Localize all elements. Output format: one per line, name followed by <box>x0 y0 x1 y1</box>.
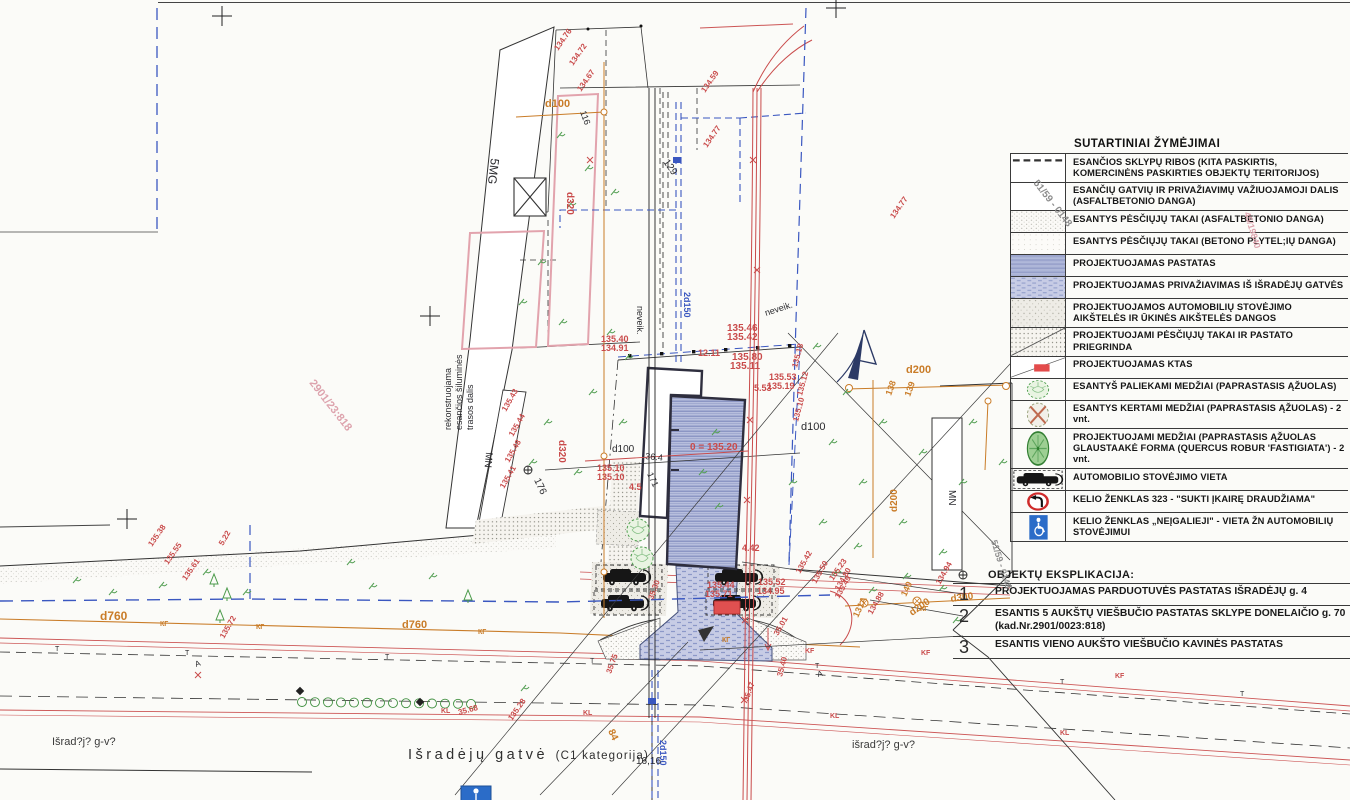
legend-item: KELIO ŽENKLAS 323 - "SUKTI ĮKAIRĘ DRAUDŽ… <box>1011 491 1348 513</box>
tree-projected-icon <box>1011 429 1066 468</box>
plan-label: KL <box>1060 730 1070 737</box>
legend-item: PROJEKTUOJAMI MEDŽIAI (PAPRASTASIS ĄŽUOL… <box>1011 429 1348 469</box>
path-concrete-icon <box>1011 233 1066 254</box>
legend-item-label: PROJEKTUOJAMAS KTAS <box>1066 357 1348 378</box>
street-note-right: išrad?j? g-v? <box>852 739 915 751</box>
legend-item-label: PROJEKTUOJAMOS AUTOMOBILIŲ STOVĖJIMO AIK… <box>1066 299 1348 327</box>
legend-item: ESANTYŠ PALIEKAMI MEDŽIAI (PAPRASTASIS Ą… <box>1011 379 1348 401</box>
plan-label: d200 <box>889 489 900 512</box>
plan-label: T <box>185 650 190 657</box>
plan-label: КГ <box>722 637 730 644</box>
footpath-projected-icon <box>1011 328 1066 356</box>
plan-label: esančios šiluminės <box>454 354 464 430</box>
path-asphalt-icon <box>1011 211 1066 232</box>
plan-label: d320 <box>564 192 575 215</box>
plan-label: 134.95 <box>757 586 785 596</box>
plan-label: d760 <box>100 609 128 623</box>
street-name: Išradėjų gatvė <box>408 747 548 763</box>
explication-item: 1PROJEKTUOJAMAS PARDUOTUVĖS PASTATAS IŠR… <box>953 583 1350 605</box>
parking-surface-icon <box>1011 299 1066 327</box>
explication-text: ESANTIS VIENO AUKŠTO VIEŠBUČIO KAVINĖS P… <box>995 638 1350 656</box>
tree-removed-icon <box>1011 401 1066 429</box>
ktas-marker-plan <box>714 601 740 614</box>
legend-item: PROJEKTUOJAMAS KTAS <box>1011 357 1348 379</box>
road-asphalt-icon <box>1011 183 1066 211</box>
legend-item-label: AUTOMOBILIO STOVĖJIMO VIETA <box>1066 469 1348 490</box>
plan-label: T <box>1240 691 1245 698</box>
plan-label: КГ <box>160 621 168 628</box>
building-projected-icon <box>1011 255 1066 276</box>
explication-panel: OBJEKTŲ EKSPLIKACIJA: 1PROJEKTUOJAMAS PA… <box>953 569 1350 659</box>
boundary-icon <box>1011 154 1066 182</box>
legend-item-label: PROJEKTUOJAMI MEDŽIAI (PAPRASTASIS ĄŽUOL… <box>1066 429 1348 468</box>
legend-item-label: ESANČIŲ GATVIŲ IR PRIVAŽIAVIMŲ VAŽIUOJAM… <box>1066 183 1348 211</box>
plan-label: KF <box>805 648 815 655</box>
plan-label: 36.4 <box>645 451 663 463</box>
plan-label: КГ <box>920 606 928 613</box>
legend-item-label: ESANTYS KERTAMI MEDŽIAI (PAPRASTASIS ĄŽU… <box>1066 401 1348 429</box>
plan-label: 12.11 <box>698 348 720 358</box>
plan-label: neveik. <box>635 306 645 335</box>
legend-item-label: ESANTYS PĖSČIŲJŲ TAKAI (ASFALTBETONIO DA… <box>1066 211 1348 232</box>
plan-label: d760 <box>402 619 427 631</box>
explication-item: 2ESANTIS 5 AUKŠTŲ VIEŠBUČIO PASTATAS SKL… <box>953 605 1350 636</box>
sign-no-left-turn-icon <box>1011 491 1066 512</box>
plan-label: MN <box>946 490 957 506</box>
legend-item: ESANČIŲ GATVIŲ IR PRIVAŽIAVIMŲ VAŽIUOJAM… <box>1011 183 1348 212</box>
sign-disabled-parking-icon <box>1011 513 1066 541</box>
parking-spot-car-icon <box>1011 469 1066 490</box>
legend-panel: SUTARTINIAI ŽYMĖJIMAI ESANČIOS SKLYPŲ RI… <box>1010 138 1348 542</box>
explication-items: 1PROJEKTUOJAMAS PARDUOTUVĖS PASTATAS IŠR… <box>953 583 1350 659</box>
explication-text: PROJEKTUOJAMAS PARDUOTUVĖS PASTATAS IŠRA… <box>995 585 1350 603</box>
plan-label: T <box>1060 679 1065 686</box>
plan-label: 135.42 <box>727 332 758 343</box>
plan-label: 2d150 <box>682 292 692 318</box>
legend-item: PROJEKTUOJAMOS AUTOMOBILIŲ STOVĖJIMO AIK… <box>1011 299 1348 328</box>
plan-label: d200 <box>906 364 931 376</box>
tree-existing-icon <box>1011 379 1066 400</box>
street-category: (C1 kategorija) <box>556 750 649 762</box>
plan-label: 4.42 <box>742 543 760 553</box>
plan-label: KF <box>921 650 931 657</box>
plan-label: 134.91 <box>601 343 629 353</box>
legend-item-label: PROJEKTUOJAMI PĖSČIŲJŲ TAKAI IR PASTATO … <box>1066 328 1348 356</box>
legend-item: ESANČIOS SKLYPŲ RIBOS (KITA PASKIRTIS, K… <box>1011 154 1348 183</box>
explication-number: 2 <box>953 607 995 634</box>
legend-item: ESANTYS KERTAMI MEDŽIAI (PAPRASTASIS ĄŽU… <box>1011 401 1348 430</box>
legend-item: KELIO ŽENKLAS „NEĮGALIEJI" - VIETA ŽN AU… <box>1011 513 1348 542</box>
legend-item-label: PROJEKTUOJAMAS PRIVAŽIAVIMAS IŠ IŠRADĖJŲ… <box>1066 277 1348 298</box>
explication-number: 1 <box>953 585 995 603</box>
explication-text: ESANTIS 5 AUKŠTŲ VIEŠBUČIO PASTATAS SKLY… <box>995 607 1350 634</box>
legend-item-label: KELIO ŽENKLAS 323 - "SUKTI ĮKAIRĘ DRAUDŽ… <box>1066 491 1348 512</box>
road-sign-blue-plan <box>461 786 491 800</box>
legend-item: PROJEKTUOJAMI PĖSČIŲJŲ TAKAI IR PASTATO … <box>1011 328 1348 357</box>
driveway-projected-icon <box>1011 277 1066 298</box>
legend-item: AUTOMOBILIO STOVĖJIMO VIETA <box>1011 469 1348 491</box>
plan-label: d320 <box>556 440 567 463</box>
plan-label: d100 <box>612 444 635 455</box>
plan-label: KL <box>583 710 593 717</box>
legend-item-label: ESANČIOS SKLYPŲ RIBOS (KITA PASKIRTIS, K… <box>1066 154 1348 182</box>
legend-item-label: ESANTYŠ PALIEKAMI MEDŽIAI (PAPRASTASIS Ą… <box>1066 379 1348 400</box>
legend-items: ESANČIOS SKLYPŲ RIBOS (KITA PASKIRTIS, K… <box>1010 153 1348 542</box>
plan-label: MN <box>482 452 494 468</box>
street-note-left: Išrad?j? g-v? <box>52 736 116 748</box>
site-plan-sheet: 5MGMNMNrekonstruojamaesančios šiluminėst… <box>0 0 1350 800</box>
legend-item: PROJEKTUOJAMAS PASTATAS <box>1011 255 1348 277</box>
plan-label: T <box>590 658 595 665</box>
plan-label: 4.5 <box>629 482 642 492</box>
plan-label: d100 <box>801 421 825 433</box>
plan-label: КГ <box>478 629 486 636</box>
legend-item-label: PROJEKTUOJAMAS PASTATAS <box>1066 255 1348 276</box>
plan-label: KF <box>1115 673 1125 680</box>
plan-label: КГ <box>256 624 264 631</box>
plan-label: KL <box>830 713 840 720</box>
legend-item: PROJEKTUOJAMAS PRIVAŽIAVIMAS IŠ IŠRADĖJŲ… <box>1011 277 1348 299</box>
plan-label: 0 = 135.20 <box>690 442 738 453</box>
street-name-label: Išradėjų gatvė (C1 kategorija) <box>408 747 649 763</box>
plan-label: T <box>385 654 390 661</box>
legend-title: SUTARTINIAI ŽYMĖJIMAI <box>1074 138 1348 150</box>
legend-item-label: ESANTYS PĖSČIŲJŲ TAKAI (BETONO PLYTEL;IŲ… <box>1066 233 1348 254</box>
plan-label: 135.71 <box>705 589 733 599</box>
legend-item: ESANTYS PĖSČIŲJŲ TAKAI (BETONO PLYTEL;IŲ… <box>1011 233 1348 255</box>
explication-title: OBJEKTŲ EKSPLIKACIJA: <box>988 569 1350 581</box>
plan-label: 135.11 <box>730 361 760 372</box>
plan-label: d100 <box>545 98 570 110</box>
plan-label: 5.53 <box>754 383 772 393</box>
legend-item: ESANTYS PĖSČIŲJŲ TAKAI (ASFALTBETONIO DA… <box>1011 211 1348 233</box>
hatched-structure <box>514 178 546 216</box>
explication-item: 3ESANTIS VIENO AUKŠTO VIEŠBUČIO KAVINĖS … <box>953 636 1350 659</box>
plan-label: 135.10 <box>597 472 625 482</box>
plan-label: KL <box>441 708 451 715</box>
plan-label: T <box>55 646 60 653</box>
ktas-marker-icon <box>1011 357 1066 378</box>
explication-number: 3 <box>953 638 995 656</box>
plan-label: rekonstruojama <box>443 368 453 430</box>
plan-label: trasos dalis <box>465 384 475 430</box>
legend-item-label: KELIO ŽENKLAS „NEĮGALIEJI" - VIETA ŽN AU… <box>1066 513 1348 541</box>
